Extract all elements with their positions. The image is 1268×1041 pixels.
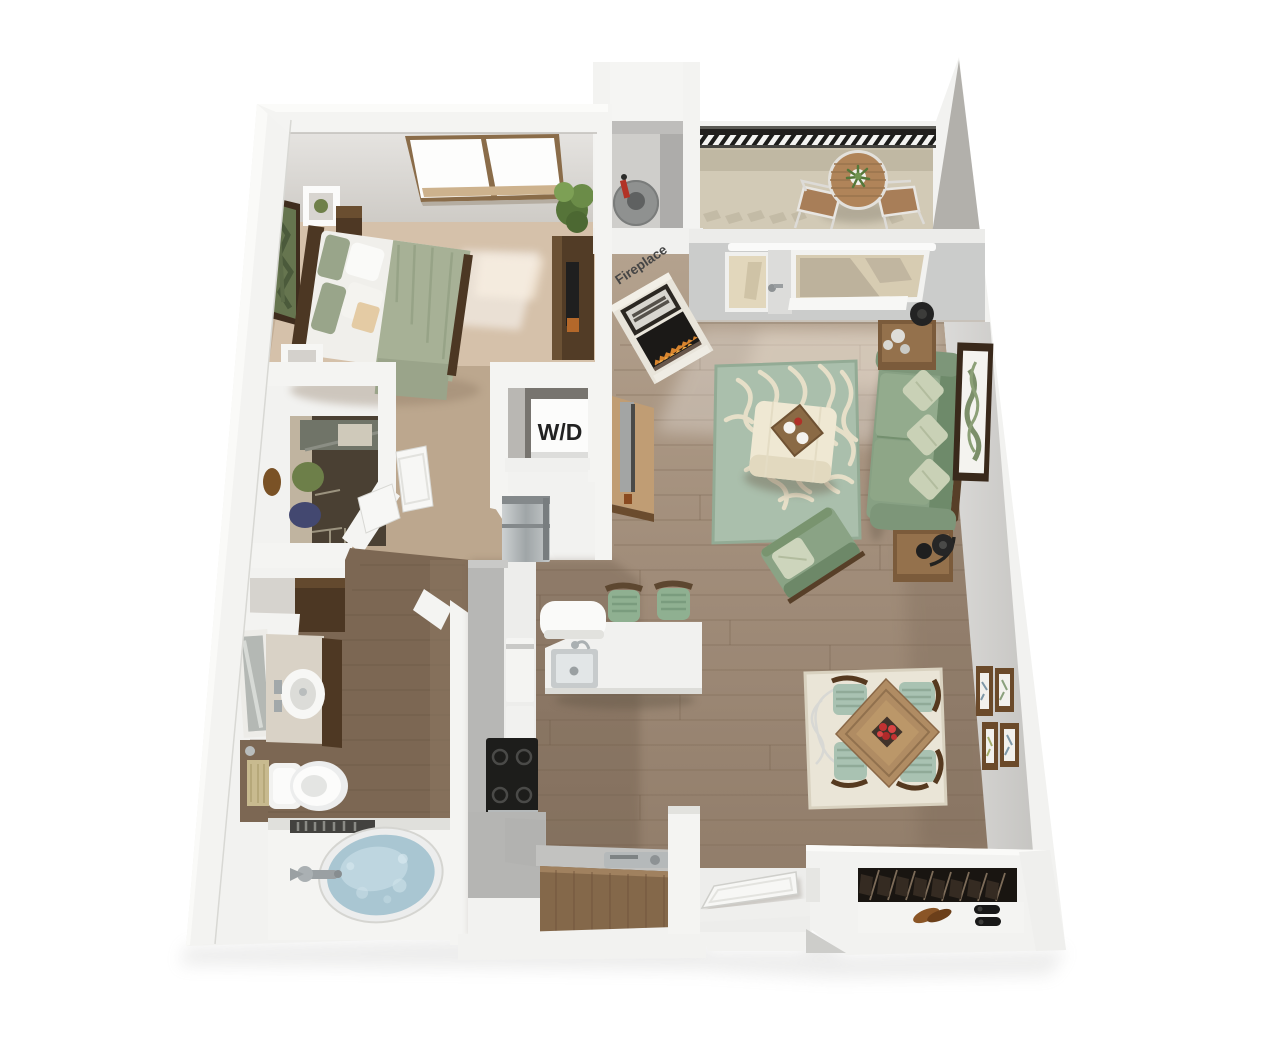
- svg-text:W/D: W/D: [538, 419, 583, 445]
